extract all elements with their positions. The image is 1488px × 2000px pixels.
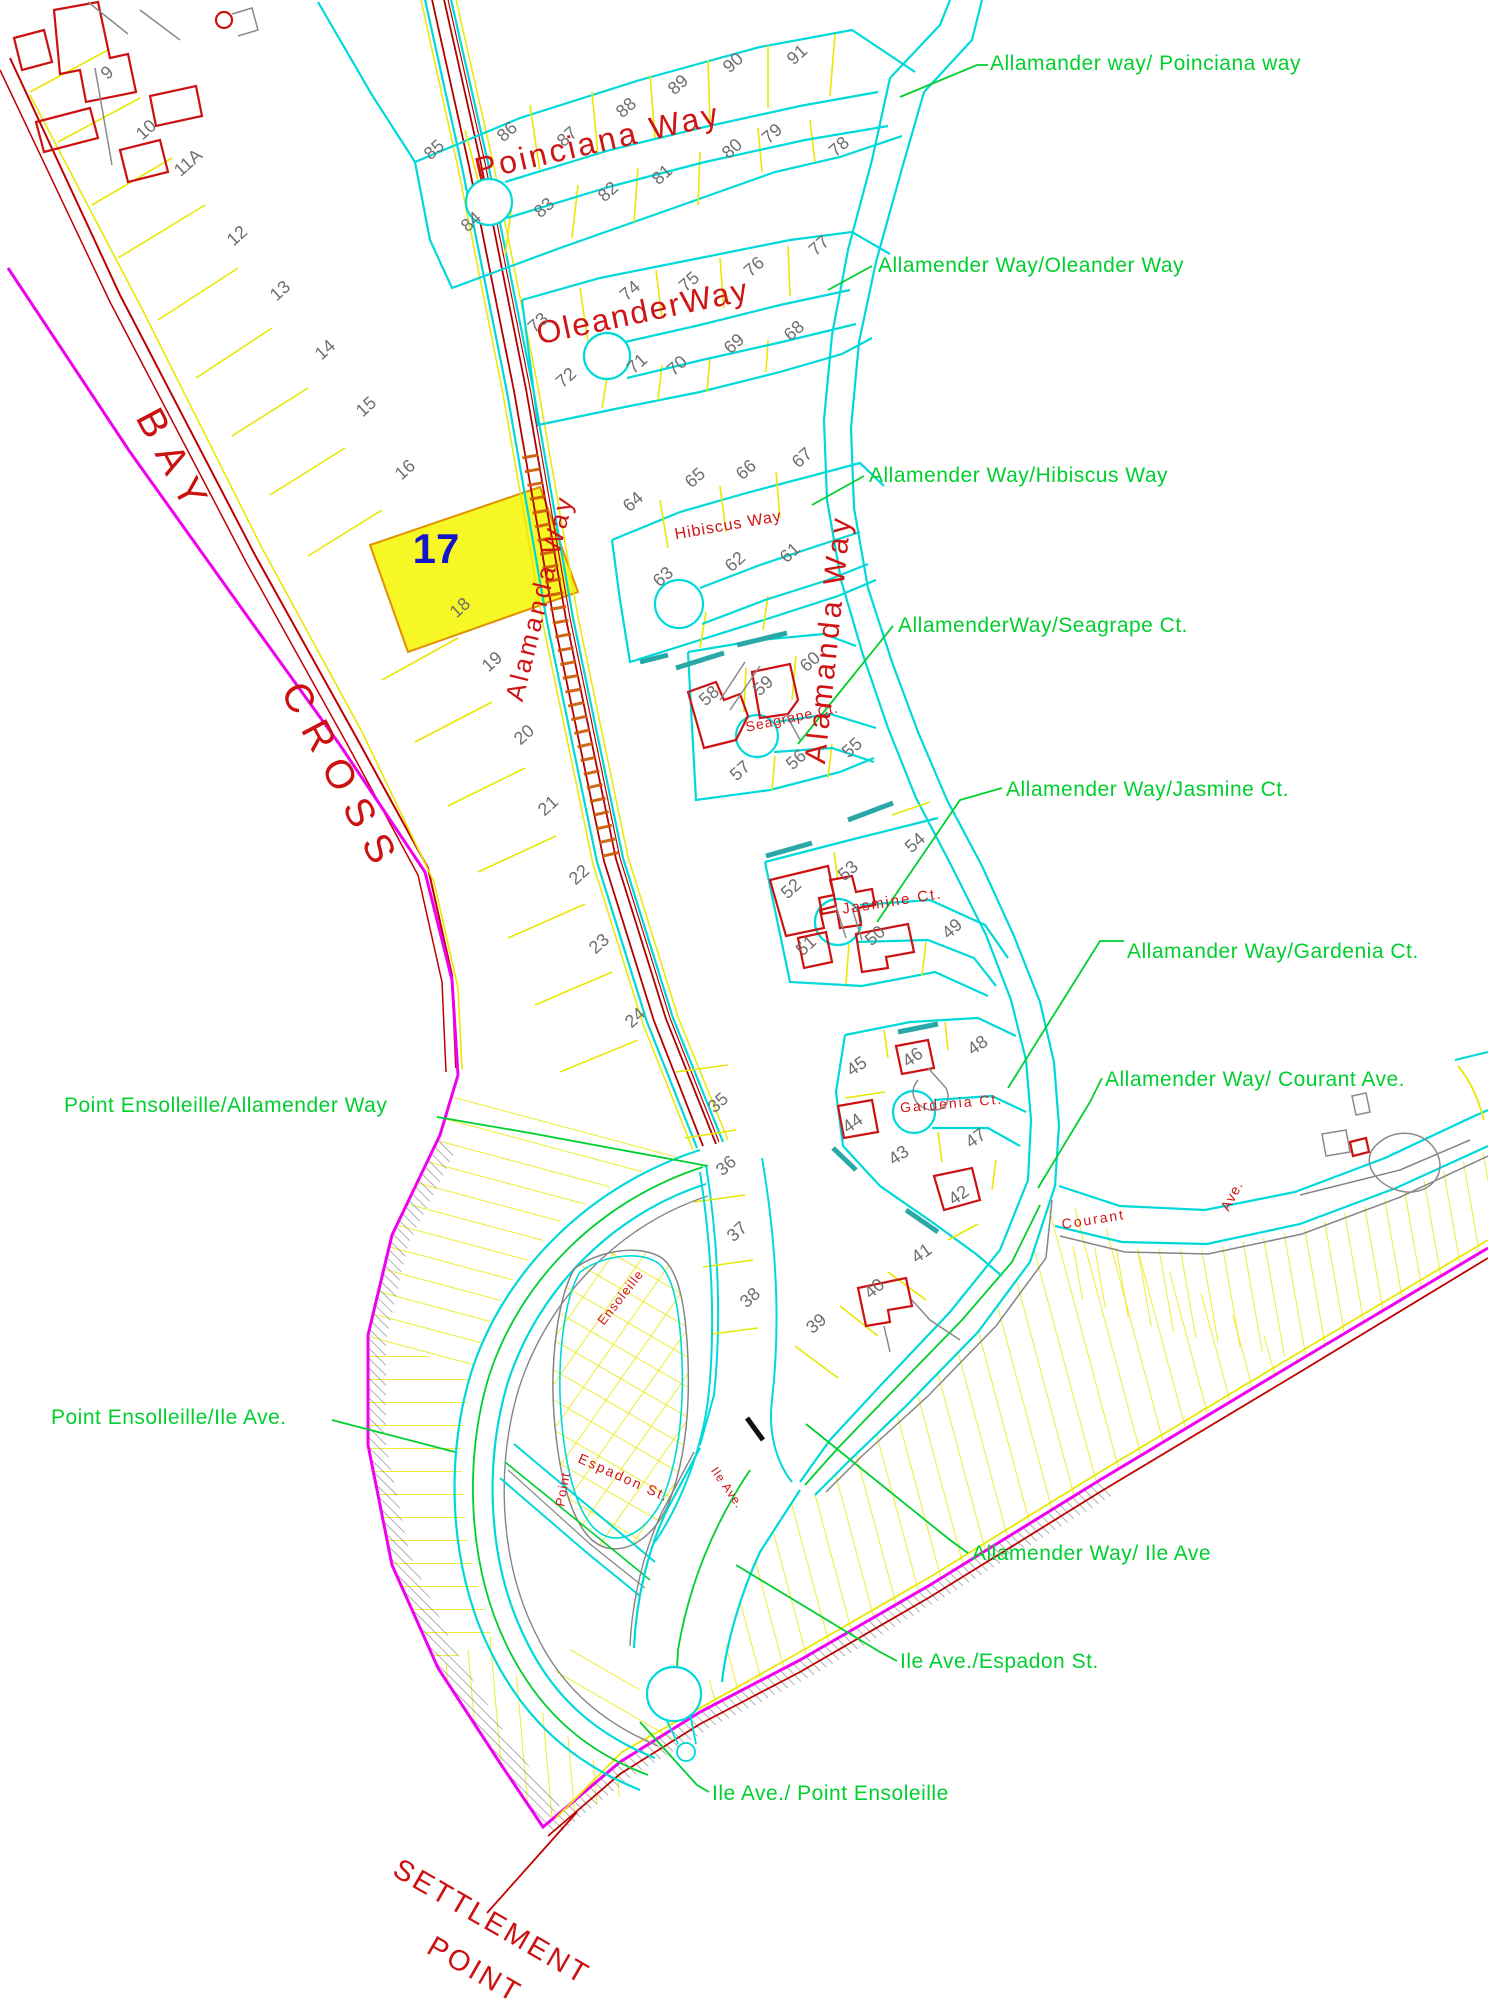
street-name-oleanderway: OleanderWay bbox=[533, 271, 752, 351]
lot-number-51: 51 bbox=[792, 931, 820, 959]
lot-number-46: 46 bbox=[899, 1043, 927, 1071]
lot-number-13: 13 bbox=[266, 276, 294, 304]
area-label-cross: CROSS bbox=[272, 675, 410, 883]
junction-label-0: Allamander way/ Poinciana way bbox=[990, 52, 1301, 75]
highlight-number-layer: 17 bbox=[413, 525, 460, 572]
lot-number-91: 91 bbox=[783, 40, 811, 68]
lot-number-39: 39 bbox=[802, 1309, 830, 1337]
lot-number-16: 16 bbox=[391, 455, 419, 483]
junction-label-7: Point Ensolleille/Allamender Way bbox=[64, 1094, 387, 1117]
lot-number-37: 37 bbox=[723, 1217, 751, 1245]
lot-number-12: 12 bbox=[223, 221, 251, 249]
lot-number-79: 79 bbox=[758, 119, 786, 147]
lot-number-58: 58 bbox=[695, 681, 723, 709]
junction-label-6: Allamender Way/ Courant Ave. bbox=[1105, 1068, 1405, 1091]
lot-number-53: 53 bbox=[834, 856, 862, 884]
junction-label-9: Allamender Way/ Ile Ave bbox=[972, 1542, 1211, 1565]
lot-number-65: 65 bbox=[681, 463, 709, 491]
junction-label-4: Allamender Way/Jasmine Ct. bbox=[1006, 778, 1289, 801]
lot-number-52: 52 bbox=[777, 874, 805, 902]
lot-number-40: 40 bbox=[860, 1274, 888, 1302]
lot-number-42: 42 bbox=[945, 1181, 973, 1209]
highlighted-lot-number[interactable]: 17 bbox=[413, 525, 460, 572]
lot-number-11A: 11A bbox=[170, 145, 206, 180]
lot-number-67: 67 bbox=[788, 443, 816, 471]
lot-number-20: 20 bbox=[510, 720, 538, 748]
lot-number-43: 43 bbox=[885, 1141, 913, 1169]
lot-number-89: 89 bbox=[664, 70, 692, 98]
lot-number-49: 49 bbox=[938, 914, 966, 942]
junction-label-5: Allamander Way/Gardenia Ct. bbox=[1127, 940, 1419, 963]
junction-label-2: Allamender Way/Hibiscus Way bbox=[869, 464, 1168, 487]
ile-point-tip bbox=[677, 1743, 695, 1761]
lot-number-70: 70 bbox=[663, 351, 691, 379]
lot-number-48: 48 bbox=[964, 1031, 992, 1059]
street-name-ile-ave-: Ile Ave. bbox=[708, 1464, 747, 1511]
junction-label-11: Ile Ave./ Point Ensoleille bbox=[712, 1782, 949, 1805]
lot-number-83: 83 bbox=[530, 193, 558, 221]
lot-number-10: 10 bbox=[132, 115, 160, 143]
junction-label-8: Point Ensolleille/Ile Ave. bbox=[51, 1406, 287, 1429]
junction-label-1: Allamender Way/Oleander Way bbox=[878, 254, 1184, 277]
lot-number-61: 61 bbox=[776, 538, 804, 566]
lot-number-50: 50 bbox=[861, 921, 889, 949]
lot-number-14: 14 bbox=[311, 335, 339, 363]
lot-number-19: 19 bbox=[478, 647, 506, 675]
street-name-alamanda-way: Alamanda Way bbox=[799, 513, 858, 765]
lot-number-36: 36 bbox=[712, 1151, 740, 1179]
lot-number-66: 66 bbox=[732, 455, 760, 483]
black-mark bbox=[747, 1418, 763, 1440]
street-name-hibiscus-way: Hibiscus Way bbox=[673, 508, 783, 544]
lot-number-81: 81 bbox=[648, 160, 676, 188]
lot-number-82: 82 bbox=[594, 177, 622, 205]
plat-map: Poinciana WayOleanderWayHibiscus WayAlam… bbox=[0, 0, 1488, 2000]
lot-number-15: 15 bbox=[352, 392, 380, 420]
ile-culdesac bbox=[647, 1667, 701, 1721]
lot-number-85: 85 bbox=[420, 135, 448, 163]
lot-number-9: 9 bbox=[97, 62, 118, 84]
lot-number-57: 57 bbox=[726, 756, 754, 784]
junction-labels: Allamander way/ Poinciana wayAllamender … bbox=[51, 52, 1419, 1805]
lot-number-38: 38 bbox=[736, 1283, 764, 1311]
plat-map-page: Settlement Point subdivision plat map bbox=[0, 0, 1488, 2000]
lot-number-45: 45 bbox=[843, 1052, 871, 1080]
junction-label-3: AllamenderWay/Seagrape Ct. bbox=[898, 614, 1188, 637]
junction-label-10: Ile Ave./Espadon St. bbox=[900, 1650, 1099, 1673]
lot-number-69: 69 bbox=[720, 329, 748, 357]
lot-number-64: 64 bbox=[619, 487, 647, 515]
settlement-point-leader bbox=[487, 1812, 577, 1913]
lot-number-21: 21 bbox=[534, 791, 562, 819]
lot-number-23: 23 bbox=[585, 929, 613, 957]
street-name-ave-: Ave. bbox=[1217, 1178, 1246, 1214]
lot-number-22: 22 bbox=[565, 860, 593, 888]
lot-number-41: 41 bbox=[908, 1239, 936, 1267]
lot-number-72: 72 bbox=[552, 363, 580, 391]
